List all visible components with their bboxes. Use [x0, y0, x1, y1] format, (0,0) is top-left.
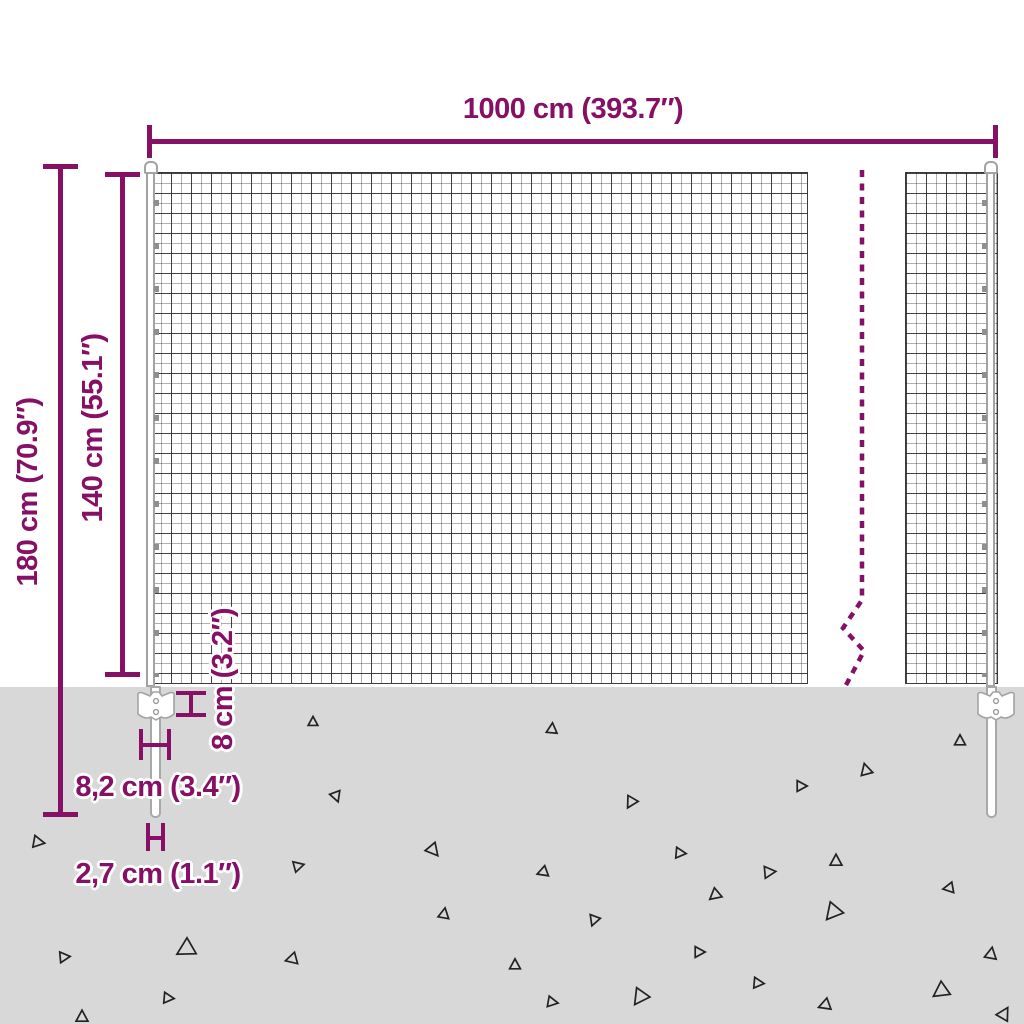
- debris-triangle-icon: [858, 762, 872, 776]
- dimension-tick: [105, 672, 140, 677]
- debris-triangle-icon: [76, 1010, 88, 1021]
- debris-triangle-icon: [164, 992, 175, 1004]
- debris-triangle-icon: [797, 781, 807, 792]
- debris-triangle-icon: [330, 791, 344, 804]
- dimension-tick: [43, 812, 78, 817]
- dimension-line: [58, 166, 63, 816]
- debris-triangle-icon: [955, 735, 966, 745]
- dimension-line: [149, 139, 998, 144]
- post-clips: [982, 200, 987, 677]
- debris-triangle-icon: [996, 1004, 1013, 1021]
- dimension-label-spike-width: 2,7 cm (1.1″): [0, 857, 328, 891]
- debris-triangle-icon: [817, 998, 831, 1013]
- debris-triangle-icon: [308, 716, 318, 725]
- post-clips: [154, 200, 159, 677]
- post-cap-icon: [984, 161, 998, 174]
- debris-triangle-icon: [438, 907, 450, 919]
- dimension-tick: [146, 823, 150, 851]
- debris-triangle-icon: [33, 835, 46, 849]
- dimension-label-anchor-width: 8,2 cm (3.4″): [0, 770, 328, 804]
- debris-triangle-icon: [929, 981, 951, 1003]
- dimension-tick: [139, 729, 143, 760]
- debris-triangle-icon: [547, 996, 559, 1008]
- debris-triangle-icon: [60, 951, 71, 963]
- debris-triangle-icon: [284, 952, 298, 966]
- anchor-plate-right: [976, 688, 1016, 722]
- dimension-tick: [176, 691, 206, 695]
- dimension-line: [120, 174, 125, 677]
- fence-post-left: [146, 164, 155, 687]
- dimension-tick: [147, 125, 152, 158]
- dimension-tick: [176, 713, 206, 717]
- debris-triangle-icon: [706, 888, 722, 904]
- debris-triangle-icon: [546, 722, 558, 733]
- mesh-panel-left: [150, 172, 808, 684]
- fence-dimension-diagram: 1000 cm (393.7″) 180 cm (70.9″) 140 cm (…: [0, 0, 1024, 1024]
- debris-triangle-icon: [587, 915, 601, 928]
- dimension-label-width: 1000 cm (393.7″): [403, 92, 743, 126]
- post-cap-icon: [144, 161, 158, 174]
- anchor-plate-left: [136, 688, 176, 722]
- debris-triangle-icon: [695, 947, 705, 958]
- dimension-label-total-height: 180 cm (70.9″): [11, 332, 45, 652]
- debris-triangle-icon: [820, 902, 844, 925]
- debris-triangle-icon: [172, 938, 196, 962]
- dimension-tick: [105, 172, 140, 177]
- debris-triangle-icon: [628, 988, 650, 1010]
- debris-triangle-icon: [622, 795, 638, 810]
- dimension-label-mesh-height: 140 cm (55.1″): [76, 268, 110, 588]
- debris-triangle-icon: [676, 847, 687, 859]
- fence-post-right: [986, 164, 995, 687]
- debris-triangle-icon: [510, 959, 521, 969]
- debris-triangle-icon: [425, 842, 443, 860]
- debris-triangle-icon: [754, 977, 765, 989]
- debris-triangle-icon: [984, 946, 998, 959]
- dimension-tick: [167, 729, 171, 760]
- debris-triangle-icon: [942, 882, 954, 894]
- debris-triangle-icon: [764, 865, 776, 878]
- debris-triangle-icon: [830, 854, 842, 865]
- dimension-tick: [993, 125, 998, 158]
- dimension-line: [189, 693, 193, 715]
- dimension-tick: [43, 164, 78, 169]
- dimension-tick: [161, 823, 165, 851]
- debris-triangle-icon: [535, 866, 548, 880]
- dimension-line: [142, 743, 170, 747]
